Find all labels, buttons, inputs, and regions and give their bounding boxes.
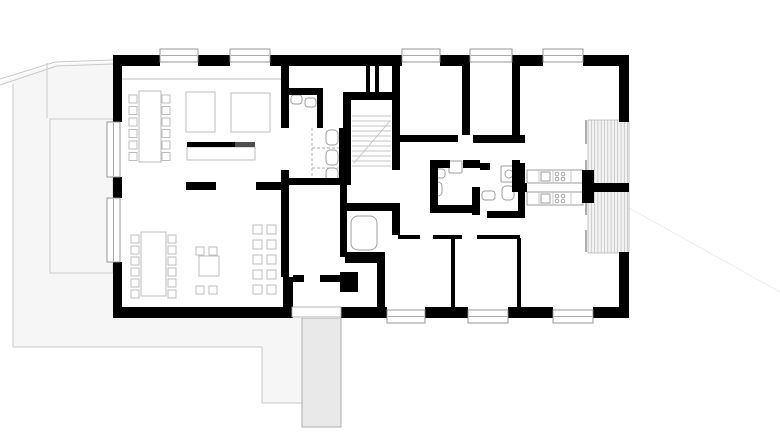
sink bbox=[482, 191, 495, 200]
chair-row bbox=[162, 118, 170, 126]
chair-row bbox=[162, 107, 170, 115]
chair-row bbox=[162, 141, 170, 149]
wall-segment bbox=[398, 135, 458, 142]
wall-segment bbox=[317, 95, 323, 128]
kitchen-sink bbox=[541, 172, 550, 181]
wall-segment bbox=[392, 66, 400, 170]
hall-counter bbox=[187, 142, 235, 147]
wall-segment bbox=[113, 262, 122, 318]
sink bbox=[291, 95, 302, 104]
cooktop-burner bbox=[555, 194, 559, 198]
lounge-chairs bbox=[253, 270, 262, 279]
chair-row bbox=[131, 290, 139, 298]
cooktop-burner bbox=[555, 199, 559, 203]
wall-segment bbox=[463, 160, 480, 168]
lounge-chairs bbox=[267, 225, 276, 234]
wall-segment bbox=[345, 252, 385, 263]
terrain-line-faint bbox=[629, 208, 780, 292]
wall-segment bbox=[377, 263, 385, 307]
kitchen-sink bbox=[541, 194, 550, 203]
wall-segment bbox=[198, 55, 230, 66]
chair-row bbox=[131, 268, 139, 276]
cooktop-burner bbox=[561, 194, 565, 198]
cooktop-burner bbox=[561, 199, 565, 203]
chair-row bbox=[129, 95, 137, 103]
chair-row bbox=[162, 153, 170, 161]
wall-segment bbox=[518, 163, 525, 217]
wall-segment bbox=[343, 100, 351, 185]
wall-segment bbox=[256, 182, 287, 190]
wall-segment bbox=[594, 183, 629, 192]
chair-row bbox=[129, 153, 137, 161]
chair-row bbox=[168, 257, 176, 265]
wall-segment bbox=[375, 66, 379, 92]
washing-machine bbox=[449, 161, 462, 173]
sink bbox=[305, 98, 316, 107]
cooktop-burner bbox=[555, 177, 559, 181]
wall-segment bbox=[619, 252, 629, 318]
lounge-chairs bbox=[267, 255, 276, 264]
wall-segment bbox=[462, 66, 470, 135]
wall-segment bbox=[293, 275, 304, 282]
wall-segment bbox=[113, 307, 292, 318]
wall-segment bbox=[341, 307, 387, 318]
wall-segment bbox=[451, 238, 455, 307]
hall-counter-end bbox=[235, 142, 255, 147]
long-table bbox=[139, 91, 161, 162]
chair-row bbox=[129, 141, 137, 149]
wall-segment bbox=[472, 187, 480, 215]
lounge-chairs bbox=[253, 255, 262, 264]
chair bbox=[196, 247, 204, 255]
wall-segment bbox=[480, 163, 490, 170]
square-table bbox=[199, 256, 219, 276]
wall-segment bbox=[433, 235, 462, 239]
chair-row bbox=[168, 268, 176, 276]
lounge-chairs bbox=[267, 240, 276, 249]
wall-segment bbox=[430, 160, 438, 210]
table bbox=[231, 93, 270, 132]
long-table bbox=[141, 232, 166, 296]
floor-plan bbox=[0, 0, 780, 444]
chair-row bbox=[168, 246, 176, 254]
lounge-chairs bbox=[253, 285, 262, 294]
entry-path bbox=[302, 318, 341, 427]
toilet bbox=[326, 130, 338, 145]
floor-plan-page bbox=[0, 0, 780, 444]
wall-segment bbox=[508, 307, 553, 318]
chair-row bbox=[129, 118, 137, 126]
lounge-chairs bbox=[267, 285, 276, 294]
wall-segment bbox=[113, 177, 122, 198]
wall-segment bbox=[392, 211, 400, 235]
wall-segment bbox=[340, 211, 347, 257]
toilet bbox=[326, 150, 338, 165]
cooktop-burner bbox=[561, 177, 565, 181]
chair-row bbox=[168, 279, 176, 287]
wall-segment bbox=[285, 88, 323, 95]
wall-segment bbox=[582, 170, 594, 203]
wall-segment bbox=[283, 277, 293, 318]
cooktop-burner bbox=[561, 172, 565, 176]
cooktop-burner bbox=[555, 172, 559, 176]
wall-segment bbox=[289, 178, 343, 185]
wall-segment bbox=[517, 238, 521, 307]
kitchen-counter bbox=[527, 170, 583, 183]
wall-segment bbox=[270, 55, 402, 66]
lounge-chairs bbox=[253, 240, 262, 249]
chair-row bbox=[162, 95, 170, 103]
wall-segment bbox=[512, 66, 520, 138]
chair-row bbox=[131, 246, 139, 254]
chair-row bbox=[131, 257, 139, 265]
lounge-chairs bbox=[253, 225, 262, 234]
wall-segment bbox=[281, 66, 289, 128]
wall-segment bbox=[425, 307, 468, 318]
wall-segment bbox=[619, 55, 629, 122]
table bbox=[186, 92, 215, 132]
wall-segment bbox=[512, 55, 543, 66]
entrance-door-glazing bbox=[292, 307, 341, 317]
wall-segment bbox=[487, 211, 525, 218]
chair bbox=[209, 247, 217, 255]
chair-row bbox=[131, 279, 139, 287]
chair-row bbox=[162, 130, 170, 138]
chair-row bbox=[129, 107, 137, 115]
wall-segment bbox=[343, 92, 400, 100]
chair bbox=[209, 286, 217, 294]
chair-row bbox=[168, 235, 176, 243]
elevator-cabin bbox=[351, 216, 377, 250]
wall-segment bbox=[340, 203, 400, 211]
sideboard bbox=[187, 147, 255, 160]
wall-segment bbox=[366, 66, 370, 92]
wall-segment bbox=[340, 272, 358, 292]
wall-segment bbox=[186, 182, 216, 190]
chair-row bbox=[131, 235, 139, 243]
kitchen-counter bbox=[527, 192, 583, 205]
chair bbox=[196, 286, 204, 294]
wall-segment bbox=[477, 235, 520, 239]
wall-segment bbox=[440, 55, 470, 66]
chair-row bbox=[129, 130, 137, 138]
wall-segment bbox=[398, 235, 420, 239]
chair-row bbox=[168, 290, 176, 298]
wall-segment bbox=[113, 55, 122, 122]
lounge-chairs bbox=[267, 270, 276, 279]
